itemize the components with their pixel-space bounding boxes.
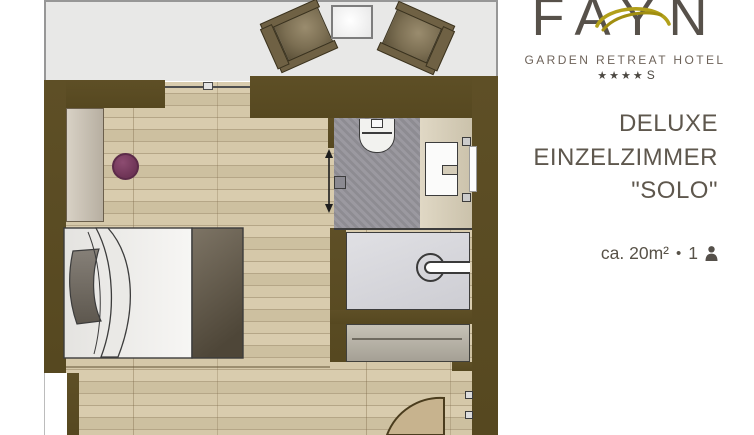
logo-swirl-icon bbox=[590, 0, 682, 36]
mirror-bracket-top bbox=[462, 137, 471, 146]
bed bbox=[58, 222, 252, 364]
shower-channel bbox=[424, 261, 470, 274]
wardrobe bbox=[66, 108, 104, 222]
room-size: ca. 20m² bbox=[601, 243, 669, 264]
luggage-bench-niche bbox=[346, 324, 470, 362]
terrace-side-table bbox=[331, 5, 373, 39]
wall-niche-top bbox=[330, 310, 472, 324]
wall-right bbox=[472, 76, 498, 435]
toilet-seat-line bbox=[362, 132, 392, 134]
wall-bathroom-middle bbox=[330, 228, 346, 362]
pouf-stool bbox=[112, 153, 139, 180]
room-type: EINZELZIMMER bbox=[533, 141, 718, 175]
stars-suffix: S bbox=[647, 68, 655, 82]
bench-edge-line bbox=[352, 338, 462, 340]
room-name: "SOLO" bbox=[533, 174, 718, 208]
stars: ★★★★ bbox=[597, 70, 644, 82]
mirror bbox=[469, 146, 477, 192]
wall-top-right bbox=[250, 76, 498, 118]
door-swing-arc-icon bbox=[387, 398, 444, 435]
wall-niche-stub bbox=[452, 362, 472, 371]
wall-window-strip bbox=[66, 373, 79, 435]
bed-runner bbox=[192, 228, 243, 358]
toilet-flush-button bbox=[371, 119, 383, 128]
room-title: DELUXE EINZELZIMMER "SOLO" bbox=[533, 107, 718, 208]
room-capacity: ca. 20m² • 1 bbox=[601, 243, 718, 264]
terrace-door-handle bbox=[203, 82, 213, 90]
room-category: DELUXE bbox=[533, 107, 718, 141]
sliding-door-arrow-icon bbox=[318, 148, 340, 214]
door-jamb-bottom bbox=[465, 411, 473, 419]
mirror-bracket-bottom bbox=[462, 193, 471, 202]
room-plan-page: FAYN GARDEN RETREAT HOTEL ★★★★S DELUXE E… bbox=[0, 0, 754, 435]
occupancy-count: 1 bbox=[688, 243, 698, 264]
entry-zone-line bbox=[66, 366, 330, 368]
star-rating: ★★★★S bbox=[531, 68, 721, 82]
door-jamb-top bbox=[465, 391, 473, 399]
person-icon bbox=[705, 246, 718, 261]
hotel-tagline: GARDEN RETREAT HOTEL bbox=[522, 53, 728, 67]
window-opening bbox=[44, 373, 67, 435]
entrance-door bbox=[372, 388, 476, 435]
faucet bbox=[442, 165, 458, 175]
bullet-separator: • bbox=[676, 245, 681, 262]
